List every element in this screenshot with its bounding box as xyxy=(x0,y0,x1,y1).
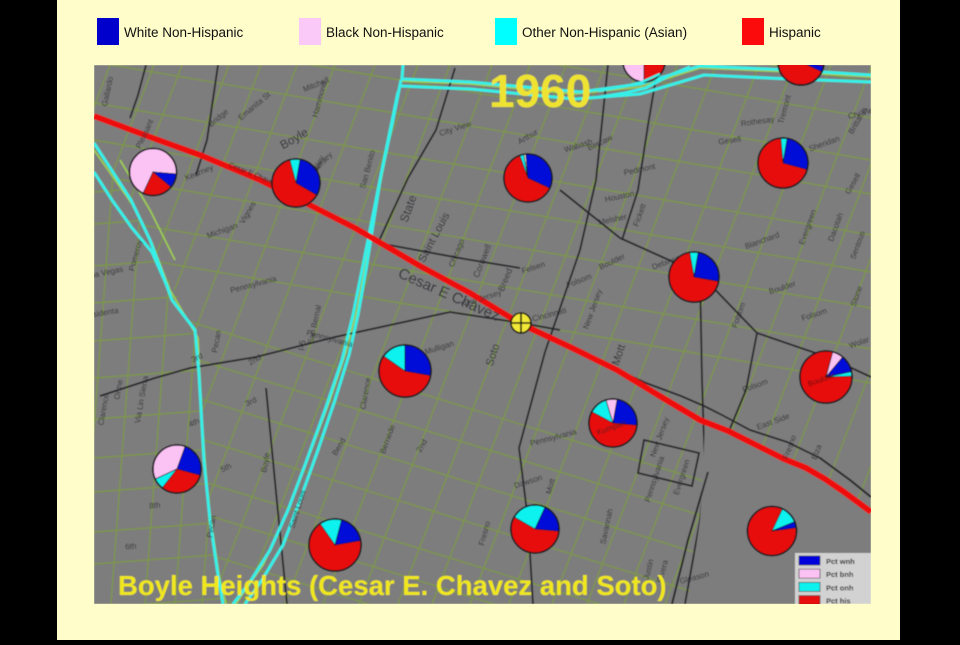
svg-text:Pct onh: Pct onh xyxy=(826,583,854,592)
svg-text:8th: 8th xyxy=(149,501,161,511)
svg-text:Pct wnh: Pct wnh xyxy=(826,557,855,566)
svg-text:Black Non-Hispanic: Black Non-Hispanic xyxy=(326,25,444,40)
svg-text:I-5: I-5 xyxy=(296,339,308,351)
svg-text:1960: 1960 xyxy=(489,65,591,117)
svg-text:6th: 6th xyxy=(125,542,137,552)
svg-text:Hispanic: Hispanic xyxy=(769,25,821,40)
svg-text:Boyle Heights (Cesar E. Chavez: Boyle Heights (Cesar E. Chavez and Soto) xyxy=(118,570,667,601)
svg-text:Pct bnh: Pct bnh xyxy=(826,570,854,579)
svg-text:Other Non-Hispanic (Asian): Other Non-Hispanic (Asian) xyxy=(522,25,687,40)
svg-text:White Non-Hispanic: White Non-Hispanic xyxy=(124,25,244,40)
